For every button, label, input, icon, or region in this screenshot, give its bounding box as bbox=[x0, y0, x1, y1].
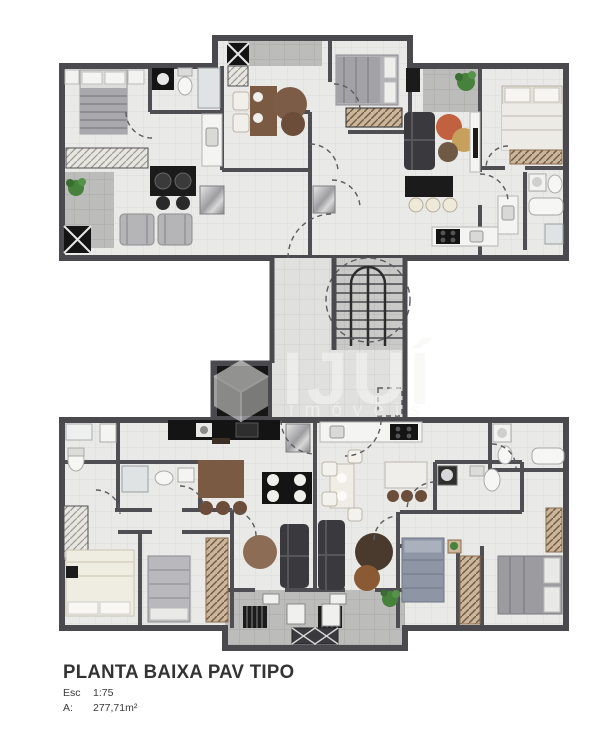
rug-round bbox=[354, 565, 380, 591]
area-value: 277,71m² bbox=[93, 702, 137, 714]
louver-strip bbox=[228, 66, 248, 86]
island-marble bbox=[385, 462, 427, 502]
washer bbox=[322, 604, 340, 626]
scale-label: Esc bbox=[63, 687, 93, 699]
bed-bench bbox=[510, 150, 562, 164]
area-label: A: bbox=[63, 702, 93, 714]
double-bed-gray bbox=[498, 556, 562, 614]
single-bed-gray bbox=[402, 538, 444, 602]
duct-black bbox=[406, 68, 420, 92]
floor-plan-drawing: IJUÍ imóveis bbox=[0, 0, 606, 750]
double-bed-cream bbox=[66, 550, 134, 616]
shaft-x-box bbox=[64, 226, 91, 253]
watermark: IJUÍ imóveis bbox=[214, 337, 434, 422]
table-black bbox=[262, 472, 312, 504]
tv-unit bbox=[470, 112, 480, 172]
fridge bbox=[286, 424, 310, 452]
side-table-plant bbox=[448, 540, 461, 553]
wardrobe bbox=[546, 508, 562, 552]
double-bed bbox=[80, 70, 127, 134]
sofa bbox=[280, 524, 309, 588]
upper-wing bbox=[62, 38, 566, 258]
shaft-x-box bbox=[227, 43, 249, 65]
floor-plan-page: IJUÍ imóveis PLANTA BAIXA PAV TIPO Esc 1… bbox=[0, 0, 606, 750]
double-bed bbox=[502, 86, 562, 150]
double-bed bbox=[336, 55, 398, 105]
fridge bbox=[313, 186, 335, 213]
kitchen-island bbox=[405, 176, 457, 212]
wardrobe bbox=[346, 108, 402, 127]
wardrobe bbox=[460, 556, 480, 624]
lower-wing bbox=[62, 420, 566, 648]
nightstand bbox=[65, 70, 79, 84]
scale-value: 1:75 bbox=[93, 687, 113, 699]
rug-round bbox=[243, 535, 277, 569]
nightstand bbox=[128, 70, 144, 84]
kitchen-strip bbox=[498, 196, 518, 234]
sofa bbox=[318, 520, 345, 590]
wardrobe bbox=[66, 148, 148, 168]
kitchen-counter bbox=[320, 422, 422, 442]
title-block: PLANTA BAIXA PAV TIPO Esc 1:75 A: 277,71… bbox=[63, 662, 299, 714]
area-row: A: 277,71m² bbox=[63, 702, 299, 714]
wardrobe bbox=[206, 538, 228, 622]
single-bed-gray bbox=[148, 556, 190, 622]
watermark-subtitle: imóveis bbox=[289, 400, 430, 421]
washer bbox=[287, 604, 305, 624]
sofa bbox=[404, 112, 435, 170]
scale-row: Esc 1:75 bbox=[63, 687, 299, 699]
kitchen-counter bbox=[432, 227, 498, 246]
plan-title: PLANTA BAIXA PAV TIPO bbox=[63, 662, 294, 684]
kitchen-counter bbox=[168, 420, 280, 440]
balcony-x-hatch bbox=[292, 628, 338, 644]
